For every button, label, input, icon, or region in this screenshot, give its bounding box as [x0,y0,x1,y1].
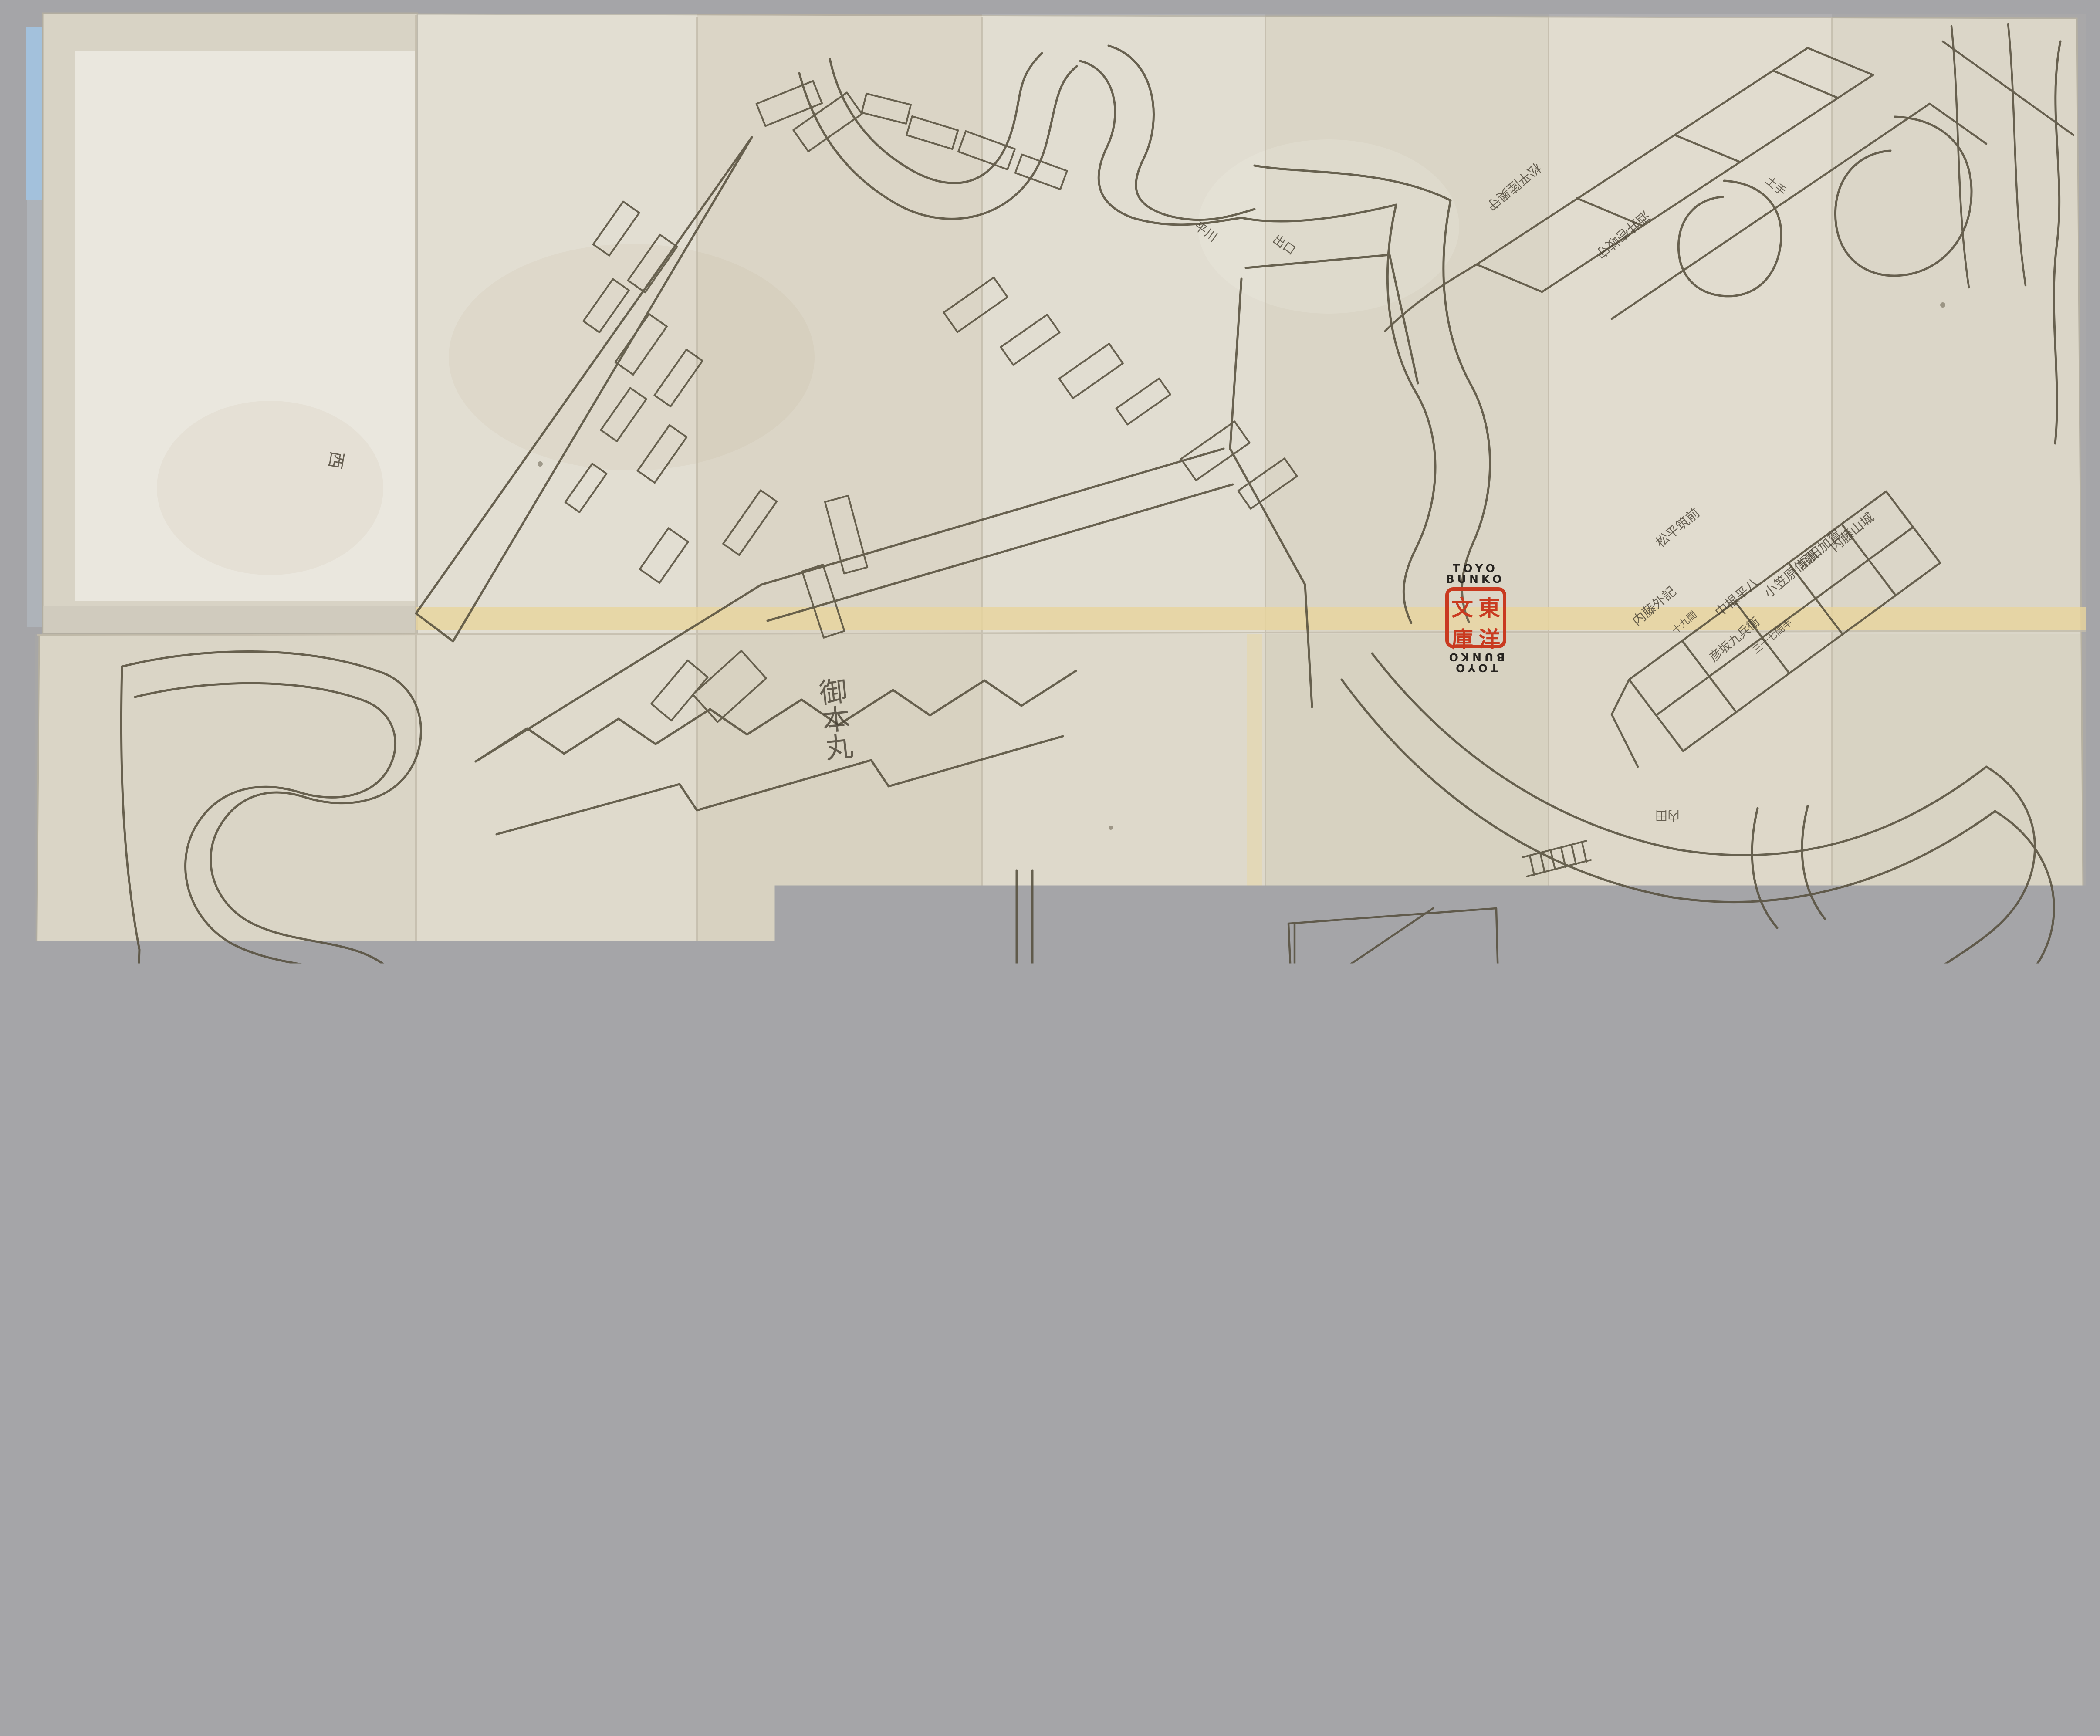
map-label: 廿四間 [1596,1475,1631,1489]
map-label: 三十八間半 [1353,941,1369,1019]
seal-glyph-block [2010,1639,2023,1655]
seal-glyph-block [1995,1639,2008,1655]
map-label: 四十七間 [1423,1482,1469,1496]
map-label: 青山大蔵 [702,1201,723,1281]
map-label: 小橋 [288,1601,300,1623]
seal-char: 洋 [1476,622,1503,653]
map-label: 井伊掃部頭 [62,1489,83,1589]
map-label: 阿部備中守 [535,1208,554,1299]
map-label: 板倉周防 [1549,1581,1570,1665]
map-label: 廿一間 [1660,1377,1669,1404]
map-label: 下川原 [1690,953,1724,965]
map-label: 安栖 [1692,1563,1711,1600]
seal-stamp: 文 東 庫 洋 [1445,587,1506,648]
seal-glyph-block [2010,1620,2023,1636]
map-label: 川 [1894,1557,1921,1584]
map-label: 青山権之助 [1299,937,1315,1015]
map-label: 三十三間 [1677,931,1719,941]
seal-latin-bottom: TOYO BUNKO [1445,652,1505,673]
map-label: 石川長門 [78,1164,99,1244]
map-label: 山田図書 [1667,904,1720,918]
map-label: 内田 [1655,809,1680,822]
map-label: 三十間 [1512,1479,1547,1493]
map-label: 松平 [1680,1383,1693,1409]
bridge-tags-layer [0,0,2100,1736]
faded-corner-seal [1989,1614,2029,1661]
map-label: 大手 [928,1062,949,1102]
map-label: 五十五間 [1660,1562,1674,1618]
seal-char: 東 [1476,591,1503,622]
map-label: 五十五間 [1483,1572,1498,1628]
map-label: 小橋 [288,1506,300,1529]
map-label: 魚住左京 [182,1176,200,1246]
map-label: 廿間 [1686,1474,1709,1487]
seal-latin-top: TOYO BUNKO [1445,563,1505,585]
map-label: 五十一間半 [955,1269,970,1343]
map-label: 青山伯耆守 [1407,971,1423,1050]
map-label: 十間 [1660,1447,1669,1465]
map-label: 和田蔵 [454,1521,471,1570]
map-label: 酒井左馬 [60,1247,82,1330]
map-label: 八木 [1682,1424,1696,1450]
toyo-bunko-seal: TOYO BUNKO 文 東 庫 洋 TOYO BUNKO [1445,563,1505,673]
map-label: 黒田右兵衛 [1219,1202,1238,1294]
seal-char: 庫 [1449,622,1476,653]
map-label: 大橋 [1068,1549,1086,1582]
map-label: 土橋 [918,1001,937,1036]
seal-char: 文 [1449,591,1476,622]
map-label: 十間 [463,1225,474,1248]
photographed-map-sheet: 御本丸土橋大手大橋石川長門酒井左馬井伊掃部頭魚住左京十間阿部備中守青山大蔵青山播… [0,0,2100,1736]
map-label: 西 [325,450,346,470]
map-label: 酒井河内守 [1358,1582,1379,1682]
map-label: 彦坂小助 [1606,1406,1615,1441]
map-label: 西尾隠岐守 [1031,1242,1114,1260]
map-label: 青山播磨守 [859,1215,879,1311]
map-label: 六間 [1627,1430,1636,1447]
seal-glyph-block [1995,1620,2008,1636]
